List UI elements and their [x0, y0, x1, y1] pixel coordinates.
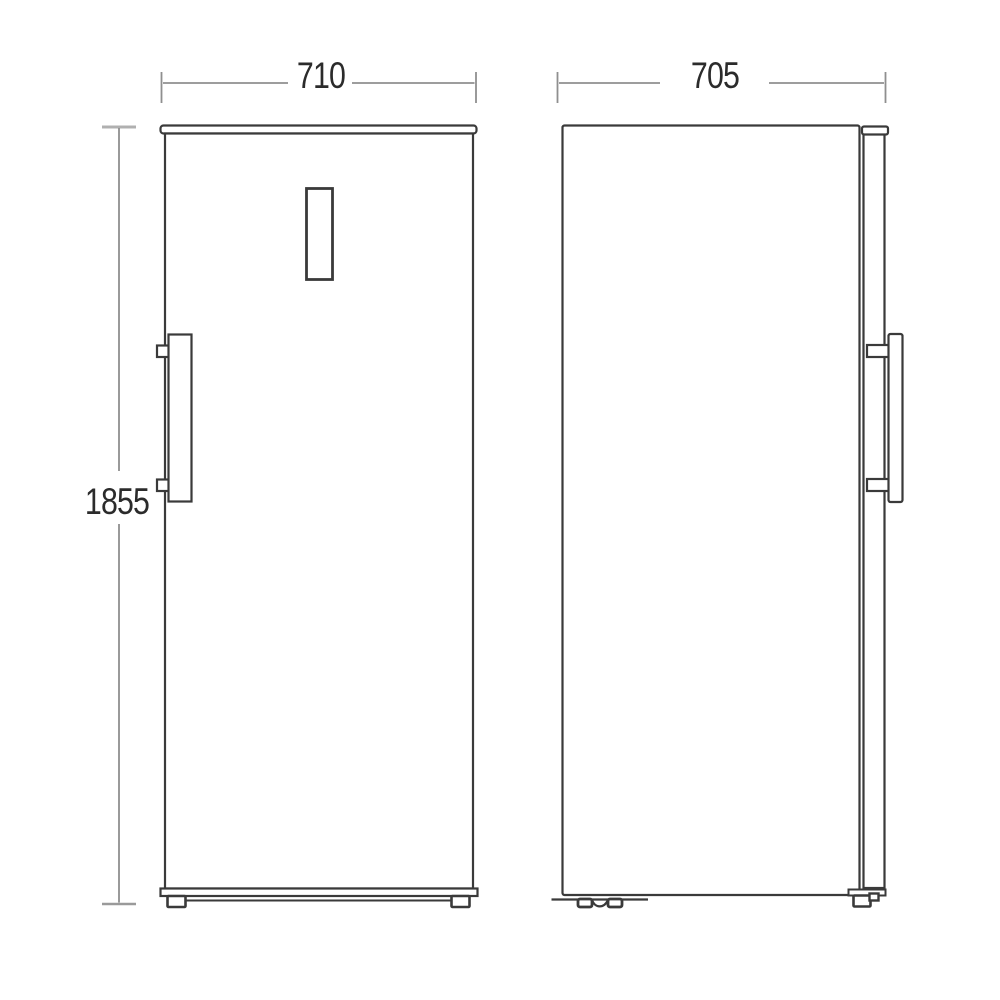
side-rear-roller-left	[578, 899, 592, 907]
side-front-foot	[854, 896, 871, 907]
front-plinth	[161, 889, 478, 897]
side-door-slab	[864, 129, 885, 888]
side-view	[552, 126, 903, 908]
side-rear-roller-dip	[592, 900, 608, 906]
side-handle-arm-bottom	[867, 479, 890, 491]
width-dimension-label: 710	[272, 57, 370, 94]
front-foot-left	[168, 896, 186, 907]
front-top-cap	[161, 126, 477, 134]
front-foot-right	[452, 896, 470, 907]
front-handle-bar	[169, 335, 192, 502]
side-cabinet-body	[563, 126, 860, 896]
side-rear-roller-right	[608, 899, 622, 907]
side-front-foot-block	[870, 894, 879, 901]
front-view	[157, 126, 478, 908]
side-door-top-cap	[862, 127, 888, 135]
front-display-panel	[307, 189, 333, 280]
height-dimension-label: 1855	[68, 483, 166, 520]
side-handle-bar	[889, 334, 903, 502]
side-handle-arm-top	[867, 345, 890, 357]
dimension-drawing-canvas: 710 705 1855	[0, 0, 1000, 1000]
depth-dimension-label: 705	[666, 57, 764, 94]
